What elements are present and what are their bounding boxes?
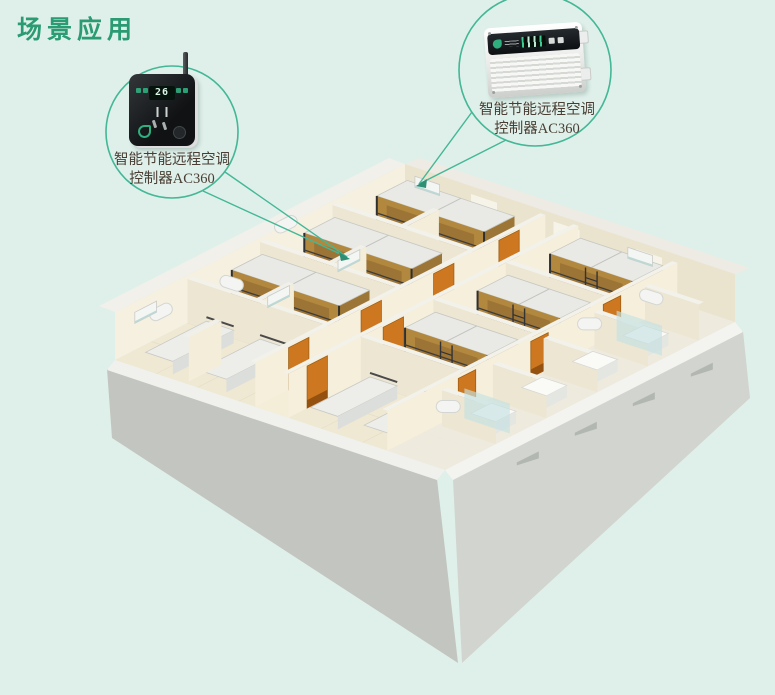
scenario-application-page: 场景应用 26 <box>0 0 775 695</box>
water-heater-cylinder <box>436 401 460 413</box>
dormitory-floorplan-illustration <box>0 0 775 695</box>
page-title: 场景应用 <box>17 10 137 46</box>
panel-text-lines <box>505 40 519 47</box>
temperature-display: 26 <box>149 86 175 100</box>
label-line2: 控制器AC360 <box>82 170 262 189</box>
panel-icon <box>557 36 563 42</box>
label-line1: 智能节能远程空调 <box>447 101 627 120</box>
din-controller-box-ac360 <box>484 22 587 99</box>
segment-display <box>521 35 546 48</box>
power-button-icon <box>173 126 186 139</box>
status-icon <box>143 88 148 93</box>
eco-leaf-icon <box>138 125 151 138</box>
mode-icon <box>162 122 167 131</box>
water-heater-cylinder <box>578 318 602 330</box>
wall-thermostat-ac360: 26 <box>129 74 195 146</box>
label-line2: 控制器AC360 <box>447 120 627 139</box>
status-icon <box>176 88 181 93</box>
thermostat-body: 26 <box>129 74 195 146</box>
pause-icon <box>157 107 168 117</box>
mode-icon <box>152 120 157 129</box>
right-callout-label: 智能节能远程空调 控制器AC360 <box>447 101 627 139</box>
panel-icon <box>548 37 554 43</box>
status-icon <box>183 88 188 93</box>
left-callout-label: 智能节能远程空调 控制器AC360 <box>82 151 262 189</box>
heatsink-fins <box>490 53 582 92</box>
brand-leaf-icon <box>492 39 502 49</box>
label-line1: 智能节能远程空调 <box>82 151 262 170</box>
status-icon <box>136 88 141 93</box>
